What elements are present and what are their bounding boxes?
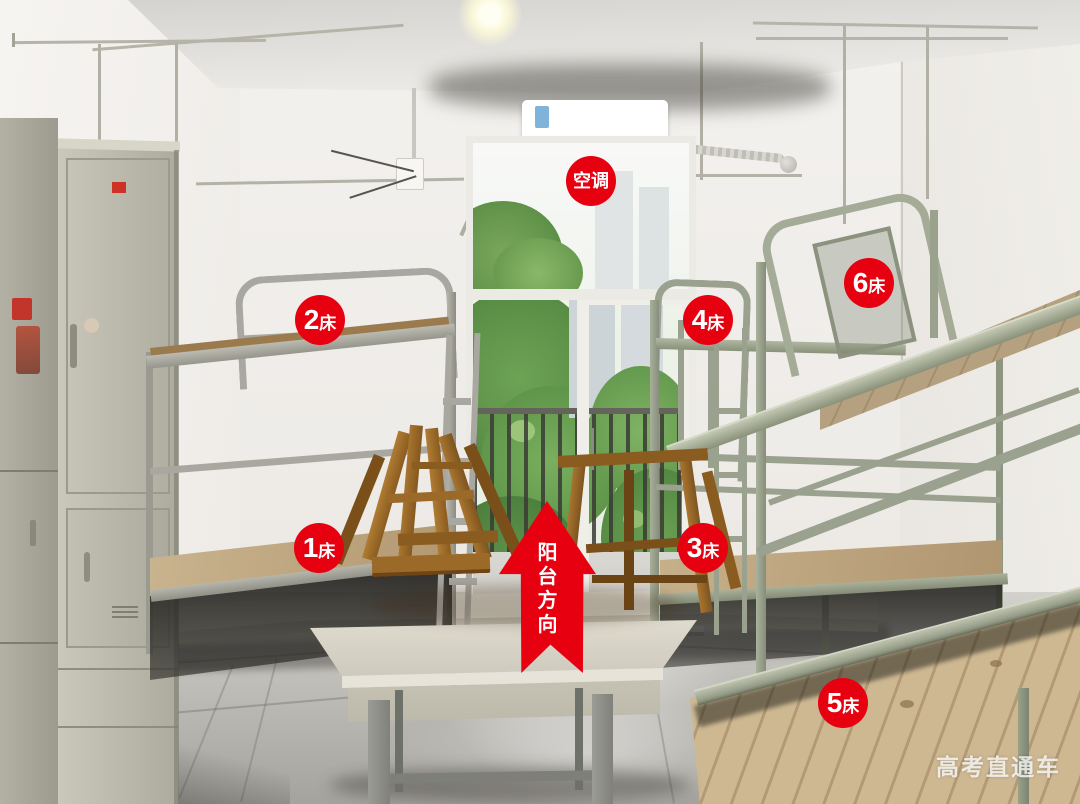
drying-rack-pole — [843, 26, 846, 224]
bed34-ladder-rail — [742, 328, 747, 633]
bed56-post-upper — [930, 210, 938, 338]
distant-building — [639, 187, 669, 291]
wall-conduit — [412, 88, 416, 163]
bed12-ladder-rung — [449, 578, 477, 585]
stool-rung — [412, 462, 472, 469]
locker-handle — [30, 520, 36, 546]
drying-rack-pole — [926, 27, 929, 199]
dorm-room-photo: 阳 台 方 向 空调 2床 4床 6床 1床 3床 5床 高考直通车 — [0, 0, 1080, 804]
locker-upper-door — [66, 158, 170, 494]
locker-seam — [0, 642, 58, 644]
locker-handle — [84, 552, 90, 582]
locker-sticker — [112, 182, 126, 193]
locker-seam — [0, 470, 58, 472]
ac-sticker — [535, 106, 549, 128]
ac-marker: 空调 — [566, 156, 616, 206]
locker-handle — [70, 324, 77, 368]
watermark: 高考直通车 — [936, 748, 1061, 782]
bed-marker-5: 5床 — [818, 678, 868, 728]
drying-rack-pole — [700, 42, 703, 180]
bed-marker-3: 3床 — [678, 523, 728, 573]
drying-rack-end — [12, 33, 15, 47]
bed-marker-2: 2床 — [295, 295, 345, 345]
locker-sticker — [84, 318, 99, 333]
front-table-leg — [368, 700, 390, 804]
wall-rack-bar — [690, 174, 802, 177]
bed12-ladder-rung — [443, 398, 471, 405]
locker-sticker — [16, 326, 40, 374]
stool-seat — [372, 553, 491, 577]
bed-marker-4: 4床 — [683, 295, 733, 345]
drying-rack-bar — [756, 37, 1008, 40]
bed34-ladder-rung — [715, 408, 746, 414]
locker-side-shadow — [174, 150, 179, 804]
bed56-leg — [1018, 688, 1029, 804]
ac-pipe-elbow — [780, 156, 797, 173]
switch-box — [396, 158, 424, 190]
bed5-deck-knot — [900, 700, 914, 708]
locker-sticker — [12, 298, 32, 320]
locker-seam — [58, 726, 178, 728]
bed-marker-1: 1床 — [294, 523, 344, 573]
stool-rung — [592, 575, 707, 583]
bed34-ladder-rung — [715, 472, 746, 478]
bed-marker-6: 6床 — [844, 258, 894, 308]
front-table-leg — [592, 694, 613, 804]
locker-cabinet-far — [0, 118, 58, 804]
balcony-direction-text: 阳 台 方 向 — [538, 541, 558, 637]
bed5-deck-knot — [990, 660, 1002, 667]
locker-vents — [112, 606, 138, 620]
